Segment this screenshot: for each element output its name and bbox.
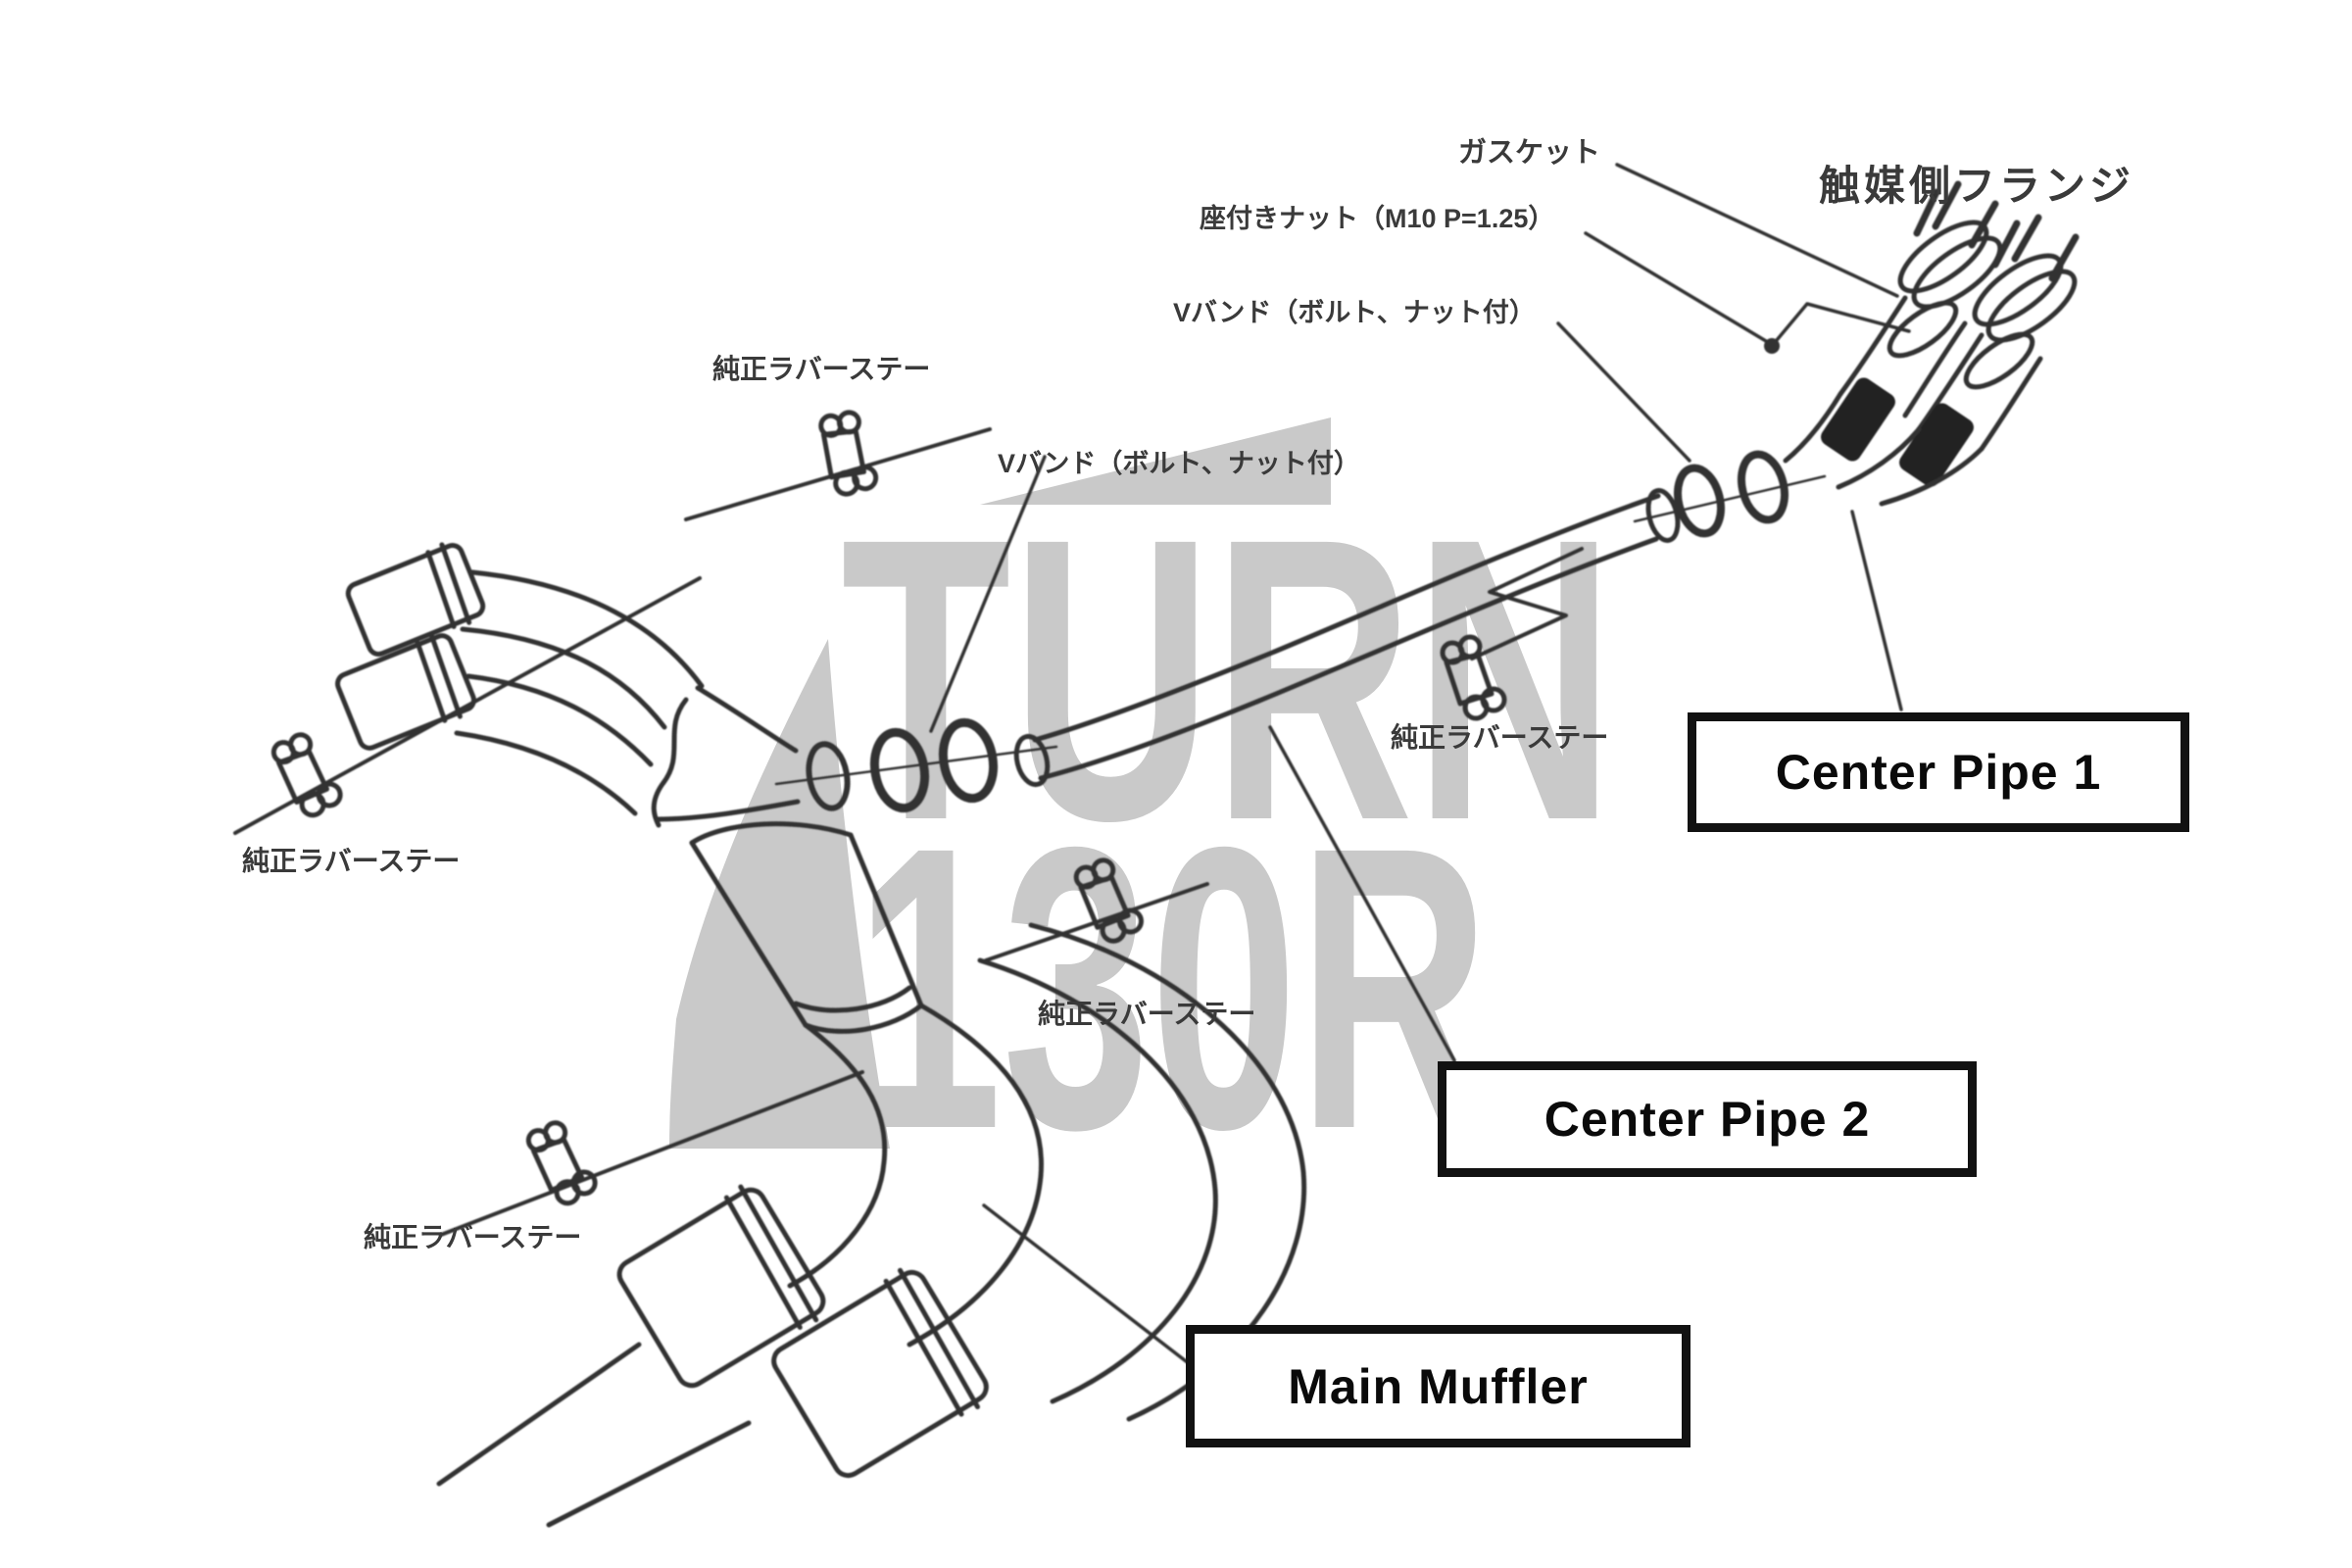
- part-box-center-pipe-2: Center Pipe 2: [1438, 1061, 1977, 1177]
- leader-flanged-nut: [1586, 233, 1766, 341]
- label-gasket: ガスケット: [1458, 136, 1600, 169]
- nut-indicator-dot: [1764, 338, 1780, 354]
- label-rubber-stay-1: 純正ラバーステー: [712, 354, 930, 384]
- part-box-center-pipe-1: Center Pipe 1: [1688, 712, 2189, 832]
- part-box-label: Center Pipe 2: [1544, 1091, 1871, 1148]
- rubber-stay-icon: [527, 1119, 597, 1206]
- v-band-joint-upper: [1635, 450, 1825, 544]
- part-box-label: Center Pipe 1: [1776, 744, 2102, 801]
- exhaust-parts-diagram: TURN 130R: [0, 0, 2352, 1568]
- label-rubber-stay-2: 純正ラバーステー: [242, 846, 460, 876]
- label-v-band-lower: Vバンド（ボルト、ナット付）: [998, 449, 1360, 478]
- leader-main-muffler: [984, 1205, 1190, 1364]
- label-rubber-stay-5: 純正ラバーステー: [364, 1222, 581, 1252]
- label-flanged-nut: 座付きナット（M10 P=1.25）: [1200, 203, 1554, 233]
- catalyst-flange-drawing: [1786, 184, 2084, 504]
- leader-flanged-nut-2: [1772, 304, 1909, 346]
- label-rubber-stay-3: 純正ラバーステー: [1391, 722, 1608, 753]
- part-box-main-muffler: Main Muffler: [1186, 1325, 1690, 1447]
- label-v-band-upper: Vバンド（ボルト、ナット付）: [1173, 298, 1536, 327]
- label-rubber-stay-4: 純正ラバーステー: [1038, 999, 1255, 1029]
- leader-center-pipe-1: [1852, 512, 1901, 710]
- gasket-ring-right: [1958, 325, 2040, 397]
- label-catalyst-side-flange: 触媒側フランジ: [1819, 163, 2134, 209]
- leader-v-band-upper: [1558, 323, 1690, 461]
- tail-tip-lower-left: [333, 629, 478, 755]
- tail-tip-upper-bottom: [612, 1180, 831, 1396]
- part-box-label: Main Muffler: [1288, 1358, 1588, 1415]
